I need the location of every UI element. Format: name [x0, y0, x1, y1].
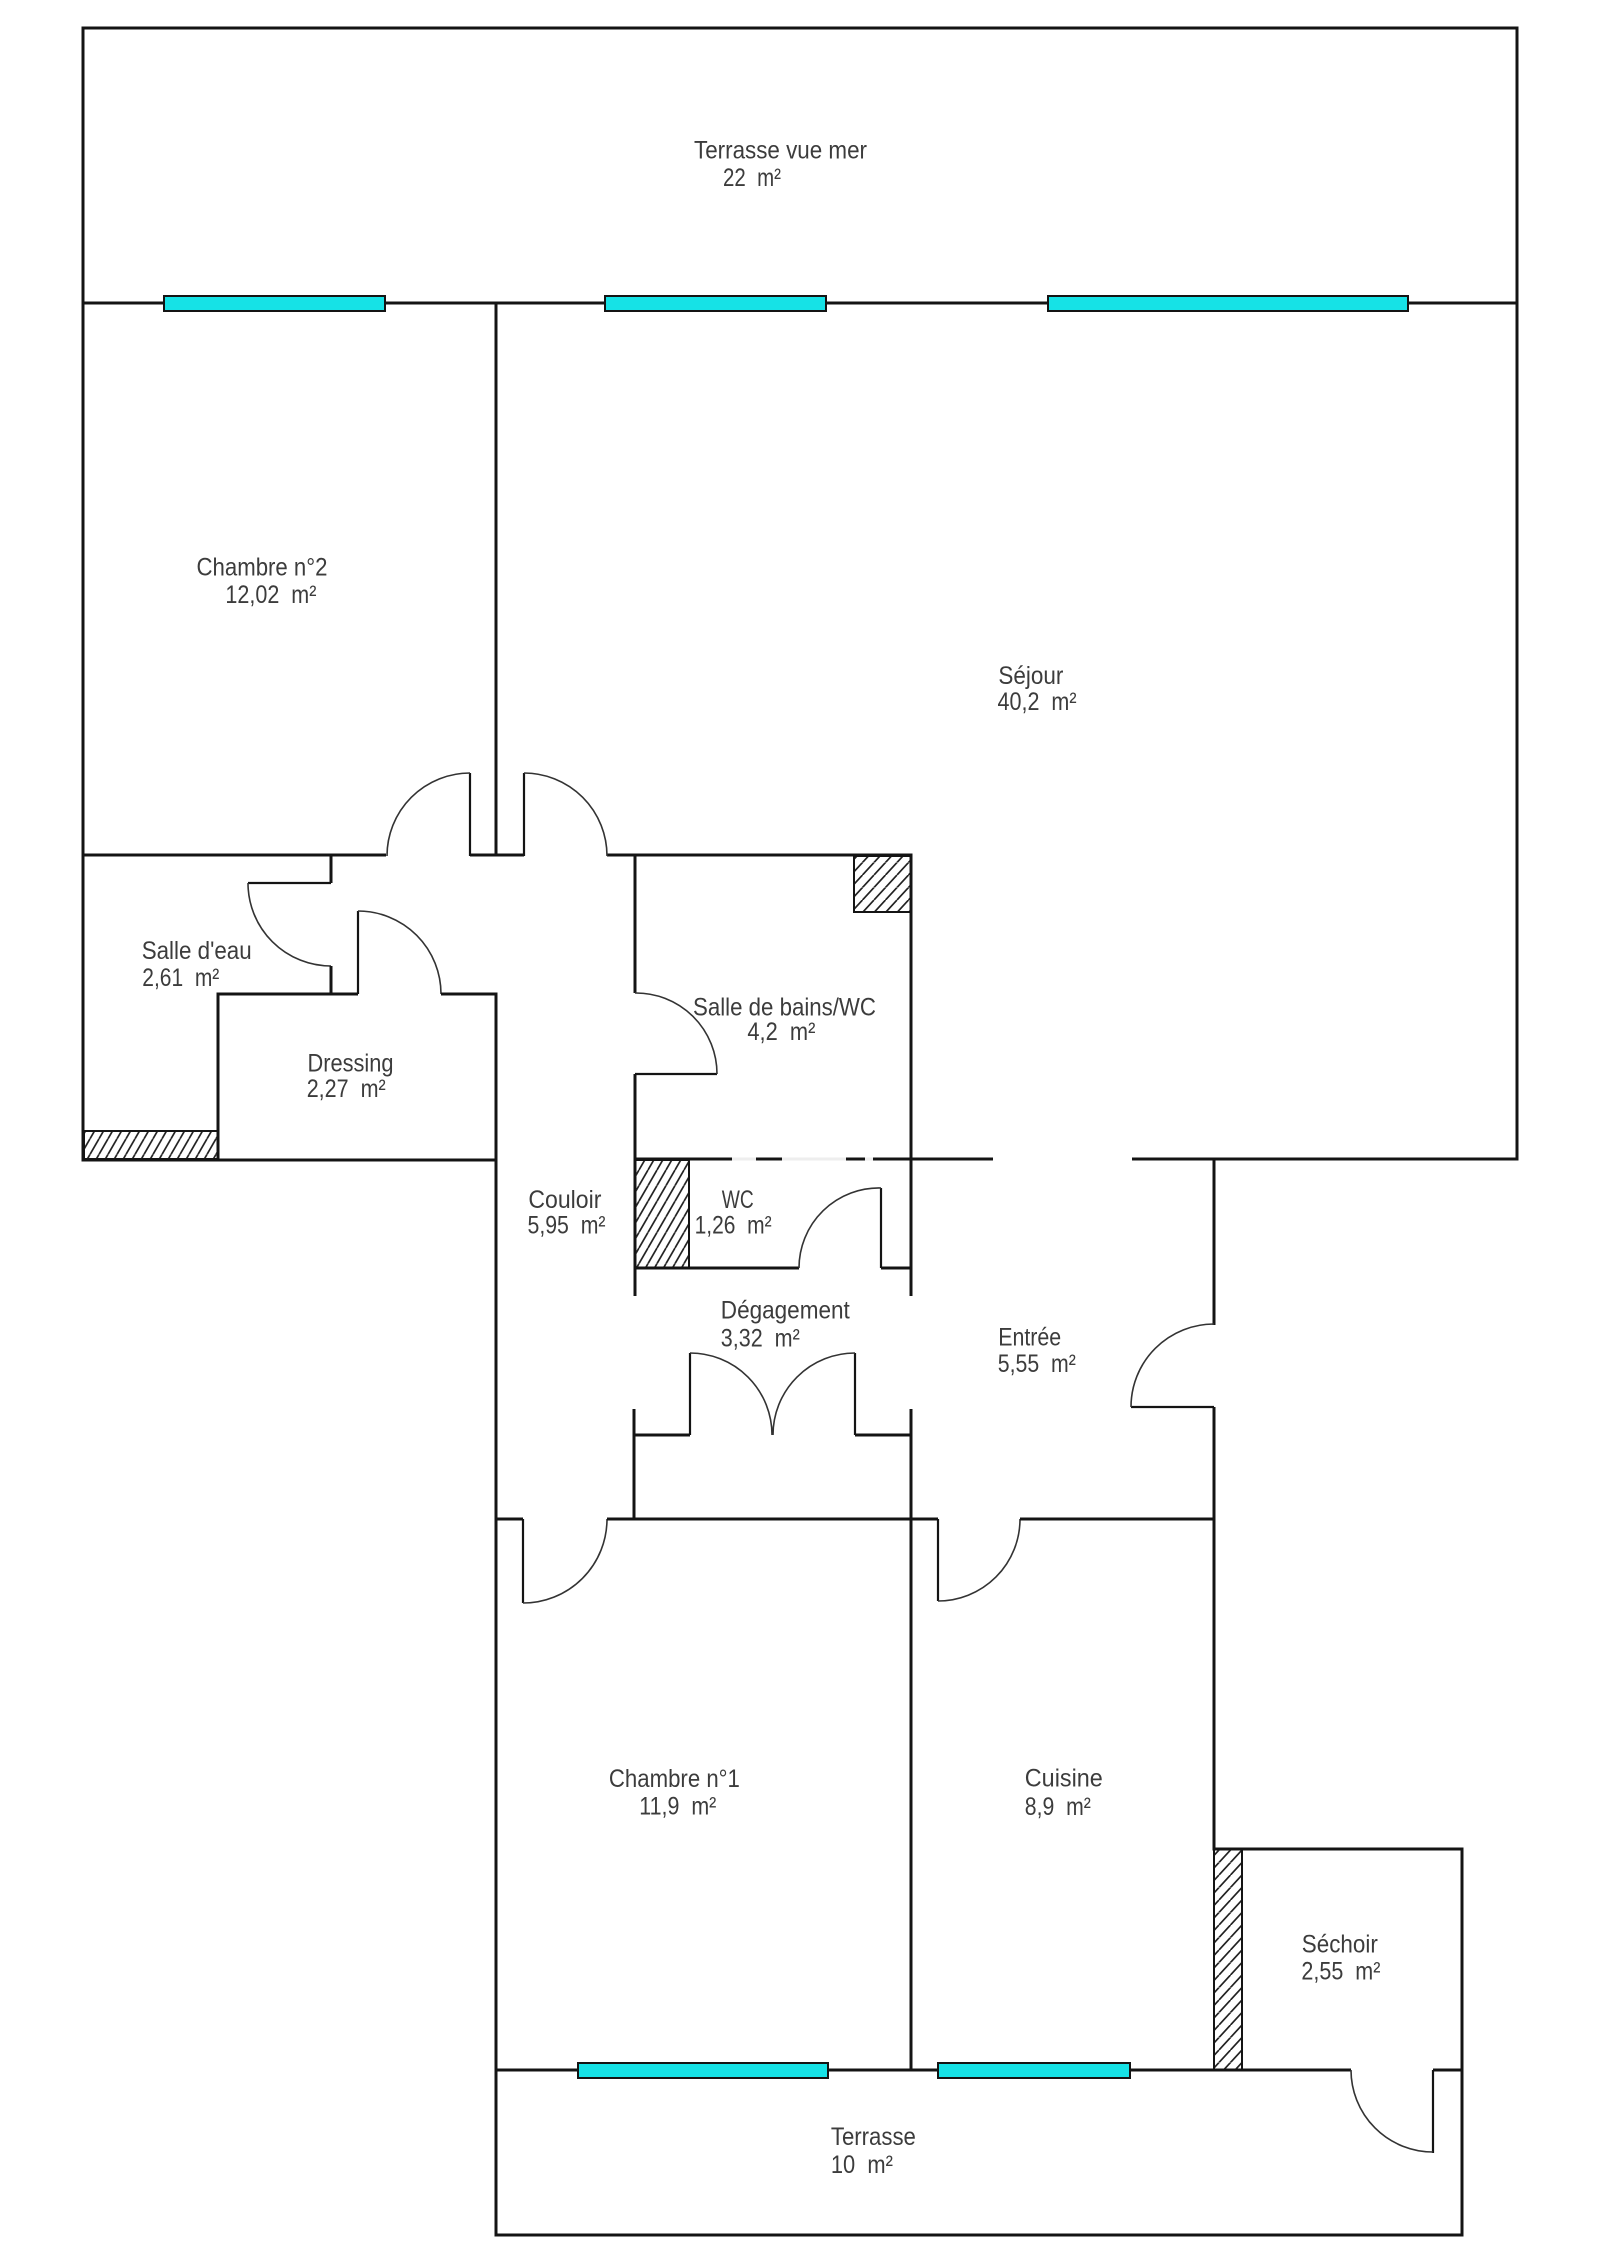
svg-text:11,9 m²: 11,9 m²: [639, 1793, 716, 1821]
svg-text:2,55 m²: 2,55 m²: [1301, 1957, 1380, 1985]
svg-text:3,32 m²: 3,32 m²: [721, 1324, 800, 1352]
svg-text:10 m²: 10 m²: [831, 2151, 893, 2179]
svg-text:Terrasse: Terrasse: [831, 2123, 916, 2151]
svg-text:12,02 m²: 12,02 m²: [225, 581, 316, 609]
svg-text:Entrée: Entrée: [998, 1324, 1061, 1352]
svg-text:Chambre n°1: Chambre n°1: [609, 1765, 740, 1793]
svg-text:Chambre n°2: Chambre n°2: [197, 554, 328, 582]
svg-text:40,2 m²: 40,2 m²: [998, 688, 1077, 716]
svg-text:Cuisine: Cuisine: [1025, 1764, 1103, 1792]
svg-text:2,27 m²: 2,27 m²: [307, 1075, 386, 1103]
svg-text:WC: WC: [722, 1186, 754, 1214]
svg-text:Couloir: Couloir: [528, 1186, 601, 1214]
svg-text:4,2 m²: 4,2 m²: [747, 1018, 815, 1046]
svg-text:5,55 m²: 5,55 m²: [998, 1350, 1076, 1378]
svg-text:5,95 m²: 5,95 m²: [528, 1211, 606, 1239]
svg-text:Séchoir: Séchoir: [1302, 1930, 1378, 1958]
svg-text:Terrasse vue mer: Terrasse vue mer: [694, 137, 867, 165]
svg-text:1,26 m²: 1,26 m²: [695, 1211, 772, 1239]
svg-text:8,9 m²: 8,9 m²: [1025, 1793, 1091, 1821]
svg-text:Dégagement: Dégagement: [721, 1297, 850, 1325]
svg-text:2,61 m²: 2,61 m²: [142, 964, 219, 992]
svg-text:Dressing: Dressing: [308, 1049, 394, 1077]
svg-text:Séjour: Séjour: [998, 662, 1063, 690]
svg-text:Salle d'eau: Salle d'eau: [142, 937, 252, 965]
svg-text:22 m²: 22 m²: [723, 164, 781, 192]
